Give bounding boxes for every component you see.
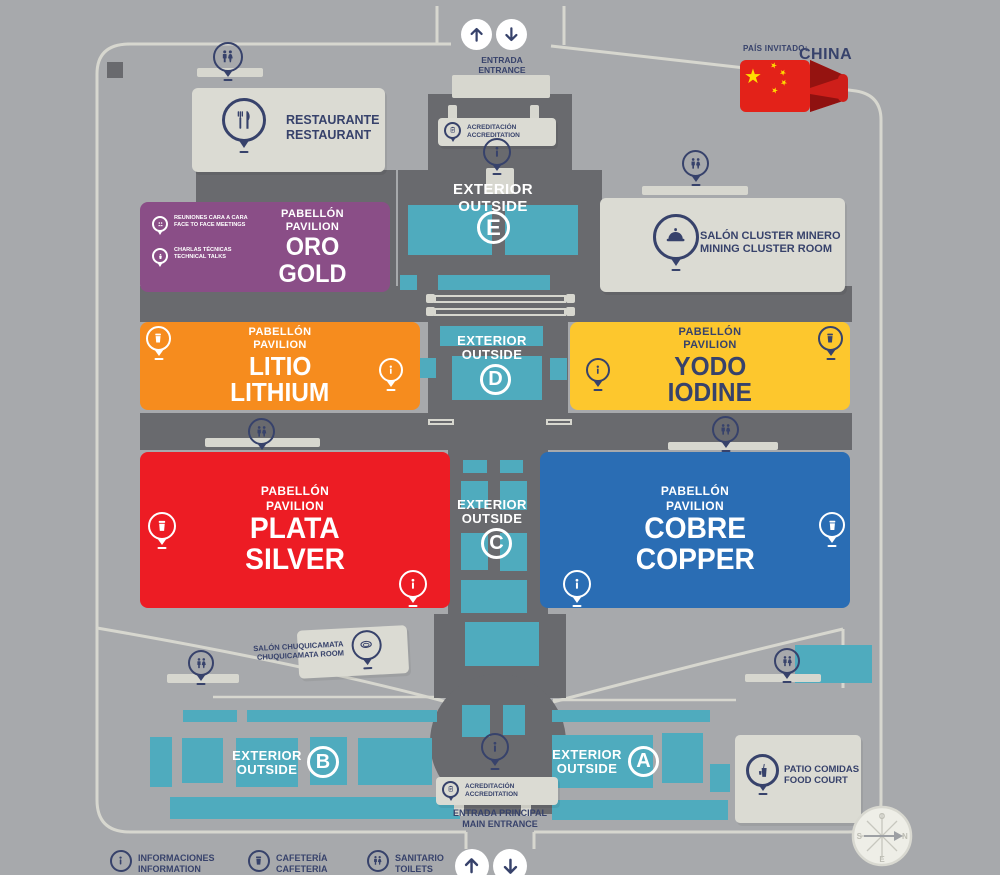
zone-a-letter: A xyxy=(636,750,650,773)
entrance-label-es: ENTRADA xyxy=(462,55,542,65)
rail-cap xyxy=(566,294,575,303)
talks-pin-icon xyxy=(152,248,168,264)
legend-cafeteria-icon xyxy=(248,850,270,872)
accreditation-en: ACCREDITATION xyxy=(465,791,518,799)
compass-north: N xyxy=(902,832,908,841)
rail-cap xyxy=(426,307,435,316)
restrooms-pin xyxy=(188,650,214,676)
badge-pin-icon xyxy=(442,781,459,798)
walkway-rail xyxy=(434,295,566,303)
accreditation-es: ACREDITACIÓN xyxy=(465,783,518,791)
restrooms-pin xyxy=(774,648,800,674)
lithium-type-es: PABELLÓN xyxy=(249,326,312,339)
exterior-c-en: OUTSIDE xyxy=(432,512,552,526)
info-pin xyxy=(563,570,591,598)
zone-c-circle: C xyxy=(481,528,512,559)
restaurant-pin-icon xyxy=(222,98,266,142)
food-court-pin-icon xyxy=(746,754,779,787)
legend-toilets-en: TOILETS xyxy=(395,864,444,875)
accreditation-bottom-label: ACREDITACIÓN ACCREDITATION xyxy=(465,783,518,799)
expo-venue-map: ENTRADA ENTRANCE PAÍS INVITADO: CHINA ★ … xyxy=(0,0,1000,875)
main-entrance-en: MAIN ENTRANCE xyxy=(440,819,560,830)
mining-cluster-en: MINING CLUSTER ROOM xyxy=(700,243,841,256)
lithium-name-es: LITIO xyxy=(249,353,311,380)
gold-title: PABELLÓN PAVILION ORO GOLD xyxy=(240,208,385,287)
silver-name-en: SILVER xyxy=(245,545,345,576)
iodine-name-en: IODINE xyxy=(668,379,752,406)
entrance-up-arrow xyxy=(461,19,492,50)
zone-d-circle: D xyxy=(480,364,511,395)
walkway-rail xyxy=(428,419,454,425)
meetings-pin-icon xyxy=(152,216,168,232)
walkway-rail xyxy=(434,308,566,316)
legend-toilets-es: SANITARIO xyxy=(395,853,444,864)
exterior-d-en: OUTSIDE xyxy=(432,348,552,362)
restaurant-es: RESTAURANTE xyxy=(286,113,380,128)
rail-cap xyxy=(426,294,435,303)
restaurant-en: RESTAURANT xyxy=(286,128,380,143)
booth-block xyxy=(461,580,527,613)
restrooms-pin xyxy=(682,150,709,177)
food-court-en: FOOD COURT xyxy=(784,775,859,786)
booth-block xyxy=(503,705,525,735)
booth-block xyxy=(550,358,567,380)
iodine-name-es: YODO xyxy=(674,353,746,380)
info-pin xyxy=(379,358,403,382)
restaurant-label: RESTAURANTE RESTAURANT xyxy=(286,113,380,143)
exterior-c-es: EXTERIOR xyxy=(432,498,552,512)
zone-e-letter: E xyxy=(486,215,501,241)
pavilion-lithium: PABELLÓN PAVILION LITIO LITHIUM xyxy=(140,322,420,410)
lithium-name-en: LITHIUM xyxy=(230,379,329,406)
entrance-label-en: ENTRANCE xyxy=(462,65,542,75)
info-pin xyxy=(483,138,511,166)
gold-type-es: PABELLÓN xyxy=(240,208,385,221)
booth-block xyxy=(358,738,432,785)
cafeteria-pin xyxy=(819,512,845,538)
compass-west: O xyxy=(879,812,885,821)
helmet-pin-icon xyxy=(653,214,699,260)
flag-star-large: ★ xyxy=(744,66,762,86)
booth-block xyxy=(710,764,730,792)
compass-east: E xyxy=(879,855,885,864)
compass-rose-icon: O N S E xyxy=(850,804,914,868)
platform xyxy=(642,186,748,195)
mining-cluster-es: SALÓN CLUSTER MINERO xyxy=(700,230,841,243)
meetings-es: REUNIONES CARA A CARA xyxy=(174,215,248,222)
legend-info-icon xyxy=(110,850,132,872)
legend-cafeteria-es: CAFETERÍA xyxy=(276,853,328,864)
booth-block xyxy=(400,275,417,290)
main-entrance-label: ENTRADA PRINCIPAL MAIN ENTRANCE xyxy=(440,808,560,830)
iodine-type-es: PABELLÓN xyxy=(679,326,742,339)
entrance-down-arrow xyxy=(496,19,527,50)
silver-name-es: PLATA xyxy=(250,514,340,545)
legend-toilets-icon xyxy=(367,850,389,872)
entrance-label: ENTRADA ENTRANCE xyxy=(462,55,542,75)
hall-structure xyxy=(107,62,123,78)
cafeteria-pin xyxy=(148,512,176,540)
booth-block xyxy=(465,622,539,666)
info-pin xyxy=(481,733,509,761)
pavilion-gold: REUNIONES CARA A CARA FACE TO FACE MEETI… xyxy=(140,202,390,292)
gold-feature-talks: CHARLAS TÉCNICAS TECHNICAL TALKS xyxy=(152,248,232,264)
zone-b-circle: B xyxy=(307,746,339,778)
walkway-rail xyxy=(546,419,572,425)
china-flag-icon: ★ ★ ★ ★ ★ xyxy=(738,56,850,120)
exterior-e-es: EXTERIOR xyxy=(433,182,553,199)
rail-cap xyxy=(566,307,575,316)
meetings-en: FACE TO FACE MEETINGS xyxy=(174,222,248,229)
exterior-c-label: EXTERIOR OUTSIDE xyxy=(432,498,552,527)
booth-block xyxy=(462,705,490,737)
main-entrance-es: ENTRADA PRINCIPAL xyxy=(440,808,560,819)
booth-block xyxy=(552,710,710,722)
cafeteria-pin xyxy=(146,326,171,351)
booth-block xyxy=(552,800,728,820)
exterior-d-es: EXTERIOR xyxy=(432,334,552,348)
legend-toilets-label: SANITARIO TOILETS xyxy=(395,853,444,875)
chuquicamata-room: SALÓN CHUQUICAMATA CHUQUICAMATA ROOM xyxy=(251,620,414,686)
compass-south: S xyxy=(857,832,863,841)
exit-down-arrow xyxy=(493,849,527,875)
zone-a-circle: A xyxy=(628,746,659,777)
zone-e-circle: E xyxy=(477,211,510,244)
exterior-d-label: EXTERIOR OUTSIDE xyxy=(432,334,552,363)
talks-en: TECHNICAL TALKS xyxy=(174,254,232,261)
gold-feature-meetings: REUNIONES CARA A CARA FACE TO FACE MEETI… xyxy=(152,216,248,232)
info-pin xyxy=(399,570,427,598)
booth-block xyxy=(438,275,550,290)
gold-name-es: ORO xyxy=(244,234,380,260)
booth-block xyxy=(170,797,460,819)
food-court-es: PATIO COMIDAS xyxy=(784,764,859,775)
mining-cluster-label: SALÓN CLUSTER MINERO MINING CLUSTER ROOM xyxy=(700,230,841,256)
booth-block xyxy=(662,733,703,783)
info-pin xyxy=(586,358,610,382)
restrooms-pin xyxy=(213,42,243,72)
gold-name-en: GOLD xyxy=(244,261,380,287)
zone-b-letter: B xyxy=(316,751,330,774)
copper-name-es: COBRE xyxy=(644,514,746,545)
booth-block xyxy=(463,460,487,473)
booth-block xyxy=(183,710,237,722)
food-court-label: PATIO COMIDAS FOOD COURT xyxy=(784,764,859,787)
entrance-platform xyxy=(452,75,550,98)
pavilion-iodine: PABELLÓN PAVILION YODO IODINE xyxy=(570,322,850,410)
copper-type-es: PABELLÓN xyxy=(661,484,729,499)
booth-block xyxy=(150,737,172,787)
legend-cafeteria-label: CAFETERÍA CAFETERIA xyxy=(276,853,328,875)
badge-pin-icon xyxy=(444,122,461,139)
silver-type-es: PABELLÓN xyxy=(261,484,329,499)
zone-c-letter: C xyxy=(489,532,503,555)
exit-up-arrow xyxy=(455,849,489,875)
copper-name-en: COPPER xyxy=(635,545,754,576)
accreditation-bottom: ACREDITACIÓN ACCREDITATION xyxy=(436,777,558,805)
accreditation-es: ACREDITACIÓN xyxy=(467,124,520,132)
booth-block xyxy=(247,710,437,722)
legend-info-en: INFORMATION xyxy=(138,864,215,875)
cafeteria-pin xyxy=(818,326,843,351)
zone-d-letter: D xyxy=(488,368,502,391)
restrooms-pin xyxy=(712,416,739,443)
talks-es: CHARLAS TÉCNICAS xyxy=(174,247,232,254)
restrooms-pin xyxy=(248,418,275,445)
legend-info-es: INFORMACIONES xyxy=(138,853,215,864)
legend-info-label: INFORMACIONES INFORMATION xyxy=(138,853,215,875)
booth-block xyxy=(500,460,523,473)
talks-label: CHARLAS TÉCNICAS TECHNICAL TALKS xyxy=(174,247,232,260)
meetings-label: REUNIONES CARA A CARA FACE TO FACE MEETI… xyxy=(174,215,248,228)
legend-cafeteria-en: CAFETERIA xyxy=(276,864,328,875)
